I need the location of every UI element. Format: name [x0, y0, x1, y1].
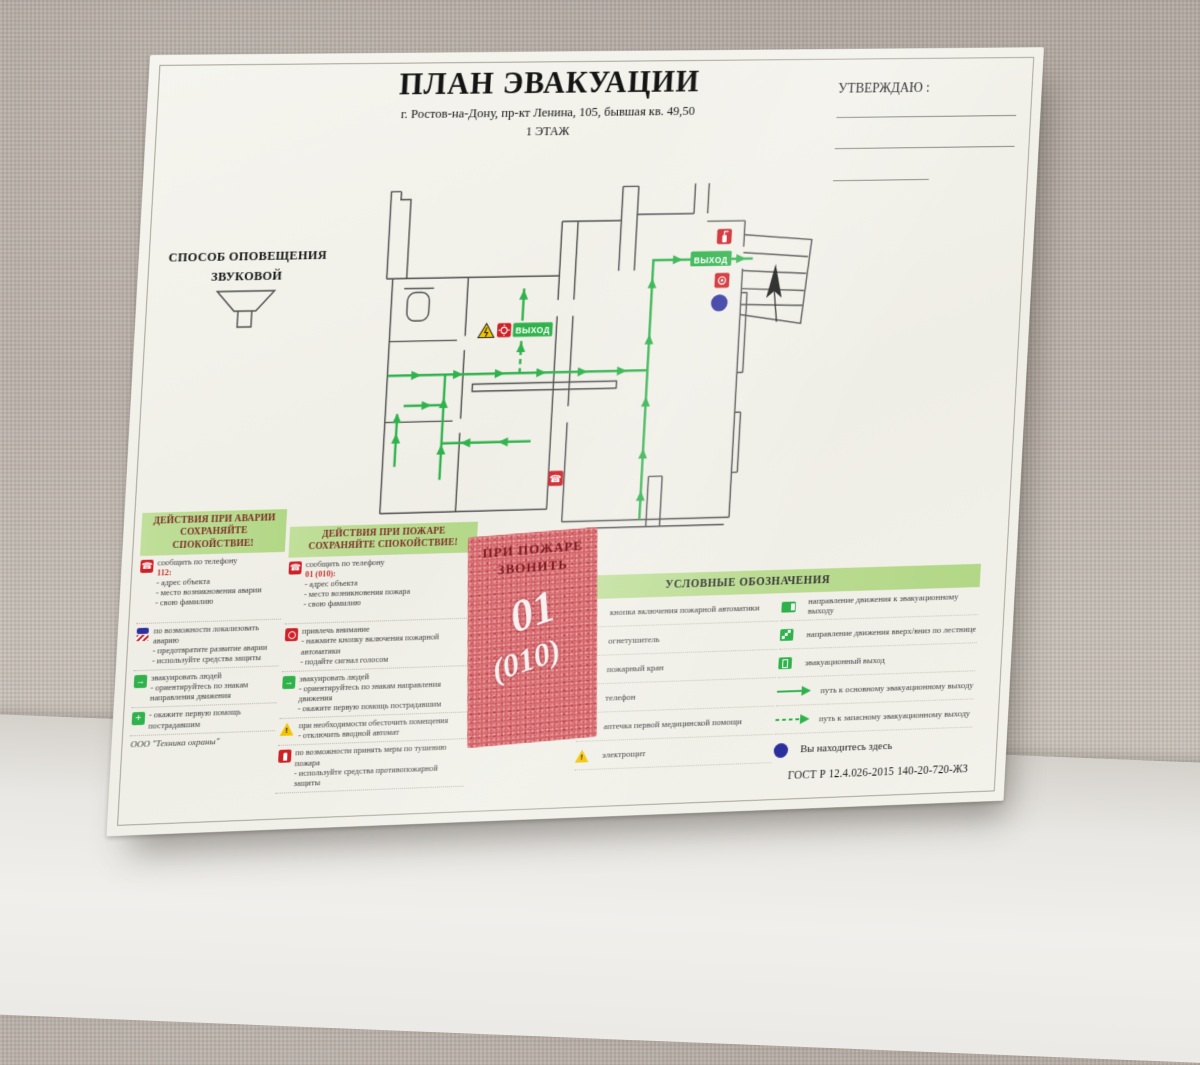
emergency-number: 112:: [157, 568, 172, 577]
signature-line: [835, 146, 1015, 149]
notification-title: СПОСОБ ОПОВЕЩЕНИЯ: [160, 248, 335, 266]
notification-type: ЗВУКОВОЙ: [159, 268, 334, 286]
reserve-route-arrow-icon: [775, 714, 810, 725]
svg-text:ВЫХОД: ВЫХОД: [694, 255, 729, 265]
stamp-number: 01: [506, 585, 559, 638]
evacuation-icon: [282, 676, 296, 689]
list-item: по возможности локализовать аварию - пре…: [134, 619, 281, 671]
list-item: эвакуировать людей - ориентируйтесь по з…: [279, 666, 470, 720]
list-item: сообщить по телефону 112: - адрес объект…: [136, 552, 285, 624]
legend-right-column: направление движения к эвакуационному вы…: [773, 587, 980, 766]
fire-actions-column: ДЕЙСТВИЯ ПРИ ПОЖАРЕ СОХРАНЯЙТЕ СПОКОЙСТВ…: [275, 522, 478, 794]
list-item: сообщить по телефону 01 (010): - адрес о…: [285, 552, 477, 625]
phone-icon: [140, 560, 154, 573]
hazard-icon: [136, 627, 150, 641]
legend-row: электрощит: [574, 735, 772, 771]
call-point-icon: [285, 628, 299, 641]
approve-label: УТВЕРЖДАЮ :: [838, 80, 1019, 97]
svg-text:☎: ☎: [549, 474, 562, 485]
floor-plan: ВЫХОД ВЫХОД ☎: [348, 172, 820, 543]
electric-panel-icon: [575, 749, 590, 762]
stairs-direction-icon: [780, 629, 794, 641]
approve-block: УТВЕРЖДАЮ :: [838, 80, 1019, 97]
plan-icons: ВЫХОД ВЫХОД ☎: [470, 229, 733, 488]
evacuation-exit-icon: [778, 657, 792, 669]
signature-line: [833, 179, 929, 181]
list-item: по возможности принять меры по тушению п…: [275, 740, 466, 794]
route-arrowheads: [388, 254, 747, 507]
evacuation-icon: [134, 675, 148, 688]
page-title: ПЛАН ЭВАКУАЦИИ: [147, 64, 940, 104]
you-are-here-dot: [773, 742, 788, 757]
list-item: эвакуировать людей - ориентируйтесь по з…: [132, 667, 279, 709]
stamp-number-alt: (010): [490, 637, 564, 688]
stairs-arrow-tail: [773, 291, 779, 322]
fire-call-stamp: ПРИ ПОЖАРЕ ЗВОНИТЬ 01 (010): [467, 527, 597, 748]
first-aid-icon: [132, 712, 146, 725]
list-item: привлечь внимание - нажмите кнопку включ…: [282, 619, 473, 672]
phone-icon: [288, 561, 302, 574]
main-route-arrow-icon: [777, 686, 812, 697]
legend-row: Вы находитесь здесь: [773, 727, 972, 765]
notification-block: СПОСОБ ОПОВЕЩЕНИЯ ЗВУКОВОЙ: [156, 248, 335, 338]
direction-to-exit-icon: [781, 601, 796, 612]
emergency-actions-column: ДЕЙСТВИЯ ПРИ АВАРИИ СОХРАНЯЙТЕ СПОКОЙСТВ…: [129, 509, 287, 750]
emergency-column-header: ДЕЙСТВИЯ ПРИ АВАРИИ СОХРАНЯЙТЕ СПОКОЙСТВ…: [140, 509, 287, 556]
electric-warning-icon: [280, 723, 296, 736]
evacuation-plan-poster: ПЛАН ЭВАКУАЦИИ г. Ростов-на-Дону, пр-кт …: [106, 47, 1044, 836]
sound-speaker-icon: [209, 289, 281, 332]
you-are-here-dot: [711, 294, 728, 311]
extinguisher-icon: [278, 750, 292, 763]
fire-number: 01 (010):: [305, 569, 336, 579]
legend-left-column: кнопка включения пожарной автоматики огн…: [574, 593, 780, 773]
svg-text:ВЫХОД: ВЫХОД: [515, 325, 550, 336]
evacuation-routes: [379, 258, 753, 527]
walls: [373, 182, 815, 534]
toilet-fixture: [406, 292, 429, 321]
header: ПЛАН ЭВАКУАЦИИ г. Ростов-на-Дону, пр-кт …: [145, 64, 941, 144]
